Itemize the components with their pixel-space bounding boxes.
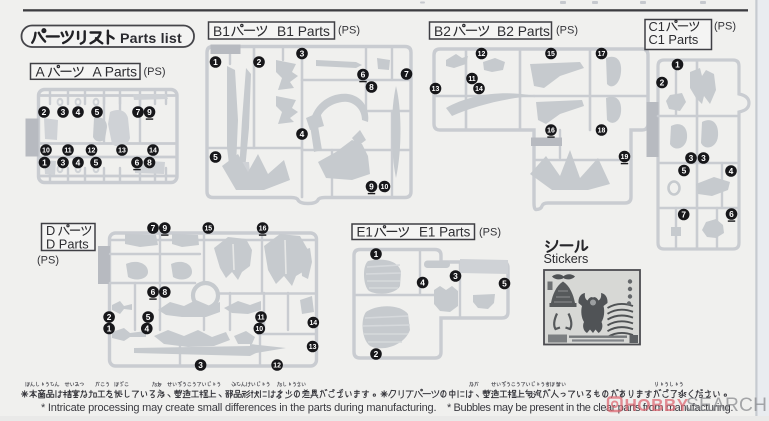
svg-text:1: 1	[42, 158, 47, 168]
svg-text:B1 Parts: B1 Parts	[277, 24, 330, 39]
svg-text:B2 Parts: B2 Parts	[497, 24, 550, 39]
svg-text:10: 10	[381, 184, 389, 191]
svg-text:3: 3	[689, 153, 694, 163]
svg-text:8: 8	[162, 287, 167, 297]
svg-text:12: 12	[88, 148, 96, 155]
svg-text:14: 14	[475, 86, 483, 93]
svg-text:(PS): (PS)	[556, 25, 578, 37]
svg-text:8: 8	[147, 158, 152, 168]
svg-text:2: 2	[257, 57, 262, 67]
svg-text:16: 16	[547, 128, 555, 135]
svg-text:B1: B1	[213, 24, 230, 39]
svg-text:19: 19	[621, 154, 629, 161]
svg-text:3: 3	[300, 49, 305, 59]
svg-text:9: 9	[147, 107, 152, 117]
svg-text:1: 1	[675, 60, 680, 70]
svg-text:SEARCH: SEARCH	[686, 395, 767, 416]
svg-text:HOBBY: HOBBY	[625, 395, 689, 415]
svg-text:5: 5	[94, 158, 99, 168]
svg-text:8: 8	[369, 82, 374, 92]
svg-text:4: 4	[76, 107, 81, 117]
svg-text:14: 14	[149, 148, 157, 155]
svg-text:1: 1	[374, 249, 379, 259]
svg-text:(PS): (PS)	[714, 21, 736, 33]
svg-text:13: 13	[432, 86, 440, 93]
svg-text:4: 4	[300, 129, 305, 139]
svg-text:(PS): (PS)	[338, 25, 360, 37]
svg-text:6: 6	[151, 287, 156, 297]
svg-text:11: 11	[64, 148, 71, 155]
svg-text:3: 3	[61, 158, 66, 168]
svg-text:2: 2	[107, 312, 112, 322]
svg-text:* Intricate processing may cre: * Intricate processing may create small …	[41, 402, 436, 414]
svg-text:14: 14	[309, 320, 317, 327]
svg-text:9: 9	[162, 223, 167, 233]
svg-text:(PS): (PS)	[144, 66, 166, 78]
svg-text:4: 4	[144, 324, 149, 334]
svg-text:1: 1	[107, 324, 112, 334]
svg-text:6: 6	[135, 158, 140, 168]
svg-text:A: A	[36, 64, 46, 79]
svg-text:18: 18	[598, 128, 606, 135]
svg-text:5: 5	[213, 152, 218, 162]
svg-text:7: 7	[151, 223, 156, 233]
svg-text:E1: E1	[357, 225, 373, 240]
svg-text:C1 Parts: C1 Parts	[649, 32, 699, 47]
svg-text:4: 4	[76, 158, 81, 168]
svg-text:2: 2	[660, 78, 665, 88]
svg-text:11: 11	[257, 315, 264, 322]
svg-text:7: 7	[136, 107, 141, 117]
svg-text:15: 15	[547, 51, 555, 58]
svg-text:3: 3	[198, 360, 203, 370]
svg-text:11: 11	[468, 76, 475, 83]
svg-text:15: 15	[204, 226, 212, 233]
svg-text:6: 6	[729, 209, 734, 219]
svg-text:E1 Parts: E1 Parts	[419, 225, 471, 240]
svg-text:2: 2	[374, 349, 379, 359]
svg-text:12: 12	[478, 51, 486, 58]
svg-text:10: 10	[255, 326, 263, 333]
svg-text:7: 7	[681, 210, 686, 220]
svg-text:5: 5	[146, 312, 151, 322]
svg-text:1: 1	[213, 57, 218, 67]
svg-text:9: 9	[369, 182, 374, 192]
svg-text:16: 16	[259, 226, 267, 233]
svg-text:17: 17	[598, 51, 606, 58]
svg-text:5: 5	[502, 279, 507, 289]
svg-text:3: 3	[453, 271, 458, 281]
svg-text:13: 13	[309, 344, 317, 351]
svg-text:4: 4	[729, 166, 734, 176]
svg-text:Parts list: Parts list	[120, 31, 182, 47]
svg-text:5: 5	[682, 166, 687, 176]
svg-text:(PS): (PS)	[37, 255, 59, 267]
svg-text:3: 3	[61, 107, 66, 117]
svg-text:5: 5	[95, 107, 100, 117]
svg-text:D Parts: D Parts	[46, 236, 89, 251]
svg-text:6: 6	[361, 70, 366, 80]
svg-text:B2: B2	[434, 24, 451, 39]
svg-text:2: 2	[42, 107, 47, 117]
svg-text:A Parts: A Parts	[93, 64, 138, 79]
svg-text:7: 7	[404, 69, 409, 79]
svg-text:Stickers: Stickers	[544, 252, 589, 266]
svg-text:3: 3	[701, 153, 706, 163]
svg-text:10: 10	[42, 148, 50, 155]
svg-text:12: 12	[273, 363, 281, 370]
svg-text:(PS): (PS)	[479, 226, 501, 238]
svg-text:13: 13	[118, 148, 126, 155]
svg-text:4: 4	[420, 278, 425, 288]
